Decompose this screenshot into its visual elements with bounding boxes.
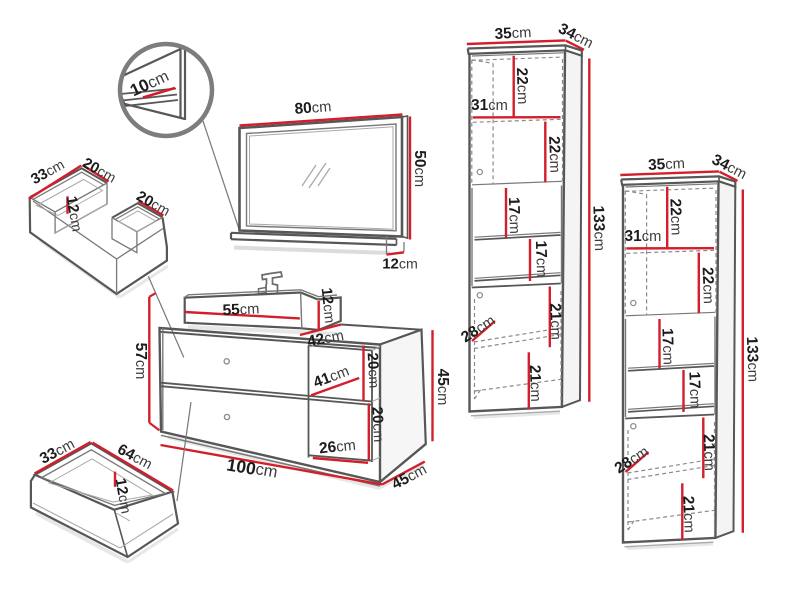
svg-text:22cm: 22cm — [699, 267, 717, 304]
svg-text:22cm: 22cm — [545, 136, 563, 173]
svg-text:22cm: 22cm — [666, 198, 684, 235]
svg-text:45cm: 45cm — [434, 369, 451, 406]
svg-text:31cm: 31cm — [624, 228, 661, 245]
svg-text:12cm: 12cm — [382, 255, 418, 272]
svg-text:21cm: 21cm — [526, 365, 544, 402]
svg-text:22cm: 22cm — [513, 67, 531, 104]
svg-text:50cm: 50cm — [411, 150, 428, 187]
svg-text:55cm: 55cm — [222, 300, 260, 319]
svg-text:21cm: 21cm — [679, 496, 697, 533]
svg-text:20cm: 20cm — [364, 352, 383, 388]
svg-text:133cm: 133cm — [589, 205, 608, 251]
svg-text:17cm: 17cm — [505, 197, 523, 234]
svg-text:31cm: 31cm — [471, 97, 508, 114]
svg-text:35cm: 35cm — [494, 24, 532, 43]
svg-text:17cm: 17cm — [532, 240, 550, 277]
svg-text:17cm: 17cm — [658, 328, 676, 365]
svg-text:17cm: 17cm — [685, 371, 703, 408]
svg-text:35cm: 35cm — [648, 155, 686, 174]
svg-text:57cm: 57cm — [132, 343, 149, 380]
svg-text:80cm: 80cm — [294, 98, 332, 118]
svg-text:21cm: 21cm — [546, 303, 564, 340]
svg-text:20cm: 20cm — [368, 406, 387, 442]
svg-text:21cm: 21cm — [700, 434, 718, 471]
svg-text:133cm: 133cm — [743, 336, 762, 382]
